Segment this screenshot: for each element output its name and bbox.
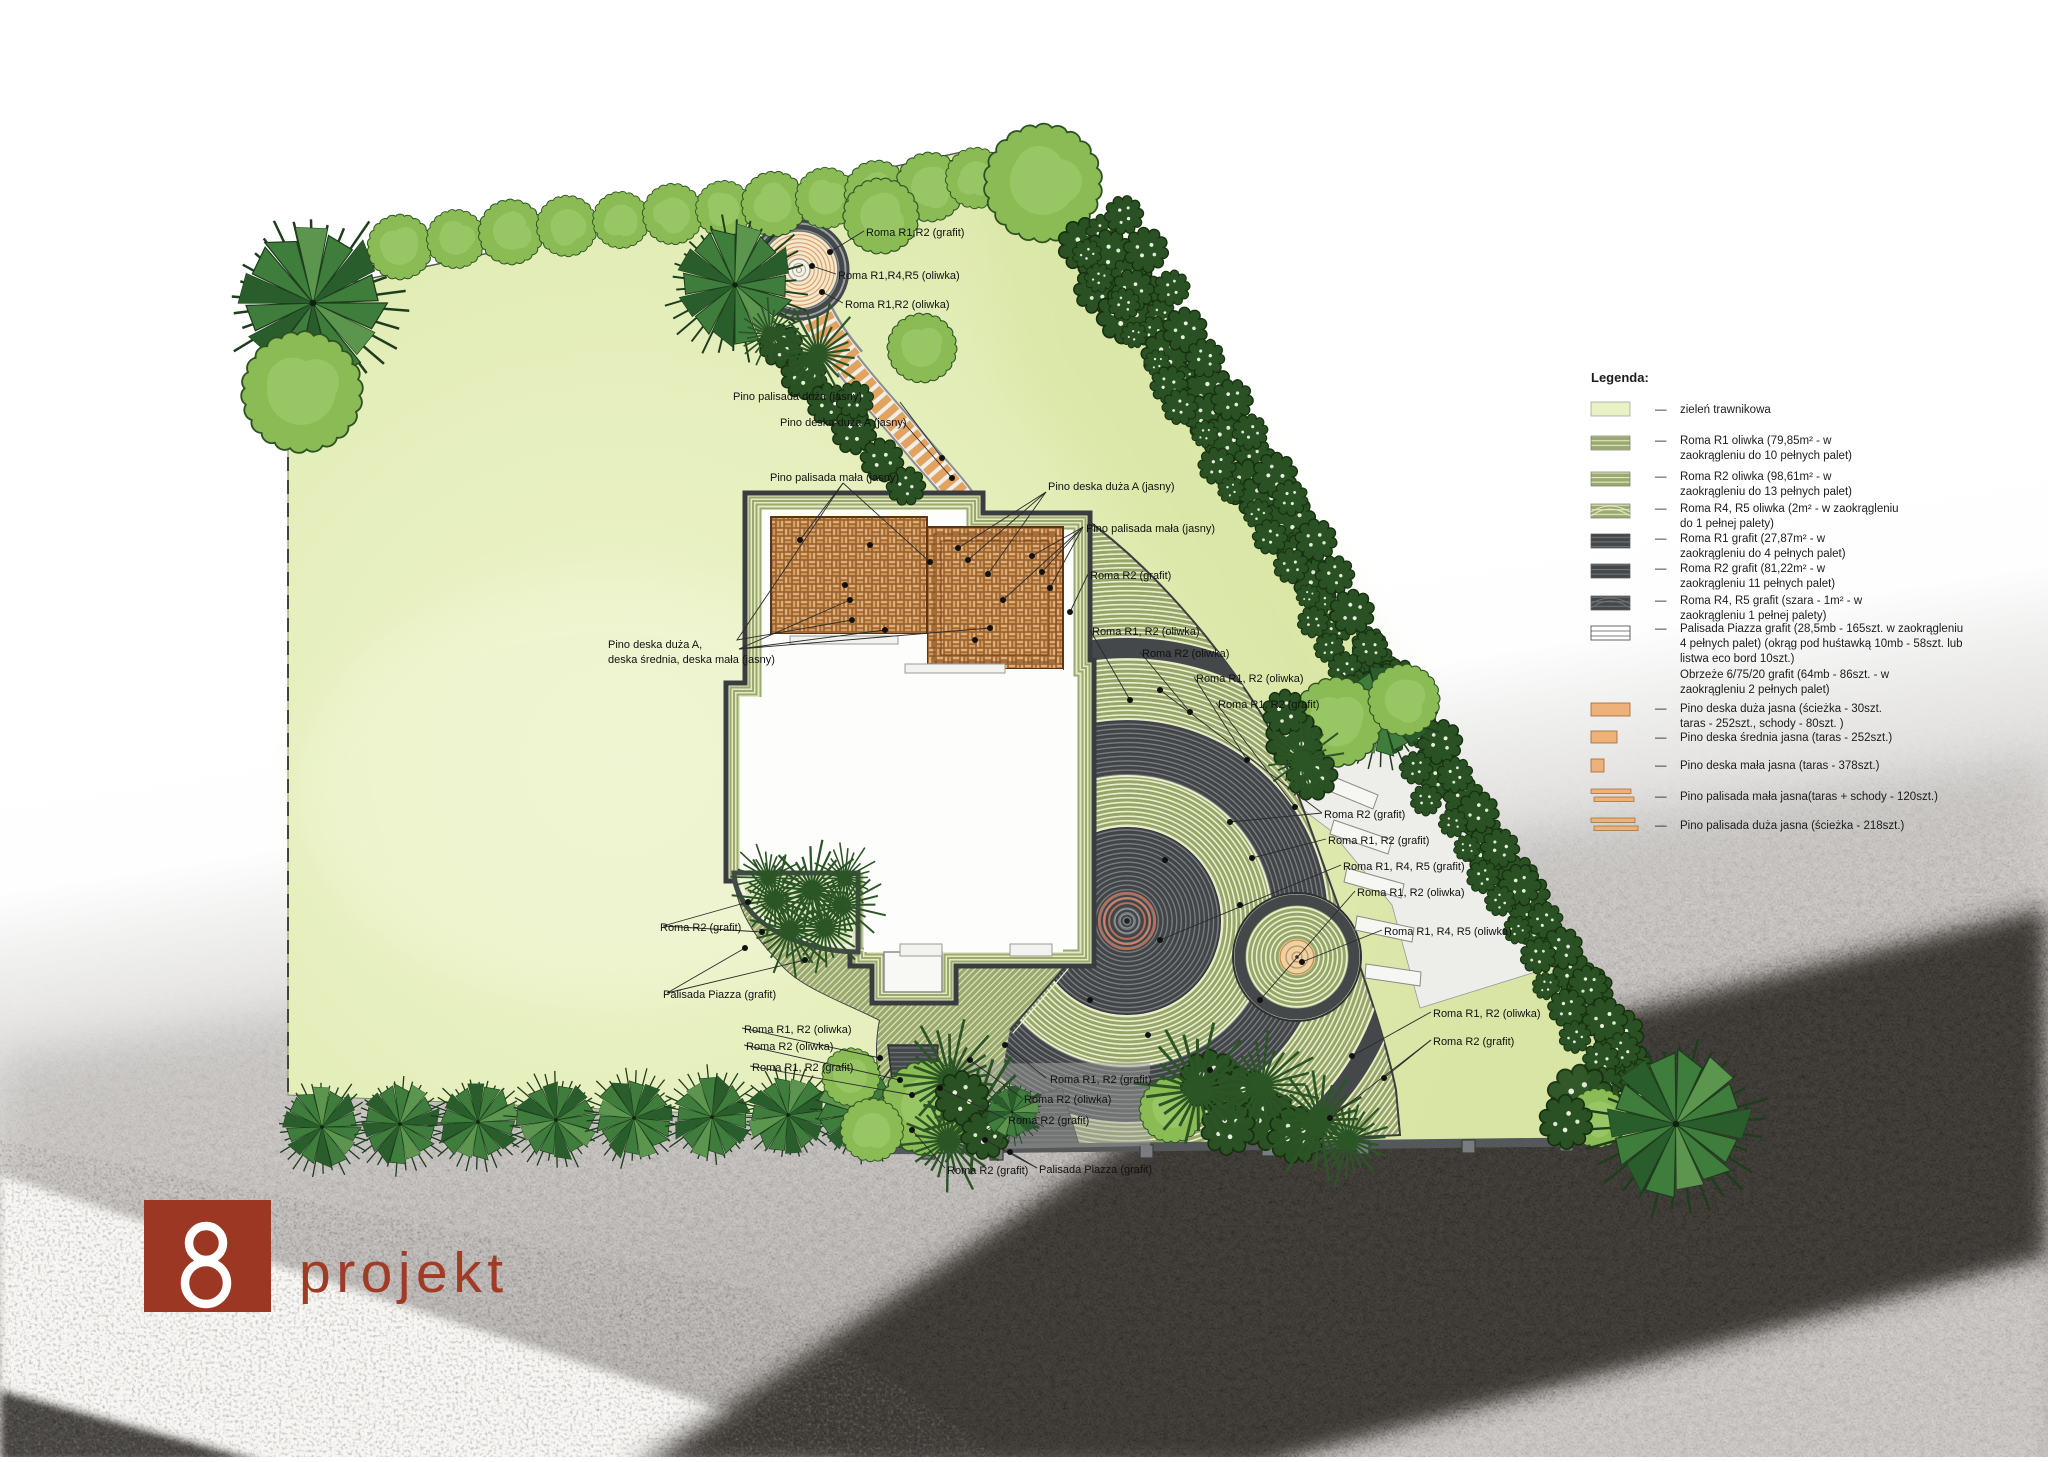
- svg-text:Pino palisada mała (jasny): Pino palisada mała (jasny): [1086, 523, 1215, 535]
- svg-text:Roma R1,R2 (grafit): Roma R1,R2 (grafit): [866, 227, 964, 239]
- svg-text:Palisada Piazza (grafit): Palisada Piazza (grafit): [663, 989, 776, 1001]
- svg-text:Roma R2 (grafit): Roma R2 (grafit): [947, 1165, 1028, 1177]
- svg-text:—: —: [1655, 791, 1667, 803]
- svg-text:Roma R1, R2 (oliwka): Roma R1, R2 (oliwka): [744, 1024, 852, 1036]
- svg-text:Pino palisada mała jasna(taras: Pino palisada mała jasna(taras + schody …: [1680, 791, 1938, 803]
- svg-text:Pino palisada duża (jasny): Pino palisada duża (jasny): [733, 391, 862, 403]
- svg-text:Roma R1 oliwka (79,85m² - w: Roma R1 oliwka (79,85m² - w: [1680, 435, 1832, 447]
- svg-text:—: —: [1655, 623, 1667, 635]
- svg-text:Roma R1 grafit (27,87m² - w: Roma R1 grafit (27,87m² - w: [1680, 533, 1826, 545]
- svg-text:Roma R2 (grafit): Roma R2 (grafit): [1008, 1115, 1089, 1127]
- svg-text:Legenda:: Legenda:: [1591, 370, 1649, 385]
- svg-text:Roma R1, R2 (oliwka): Roma R1, R2 (oliwka): [1433, 1008, 1541, 1020]
- svg-text:—: —: [1655, 820, 1667, 832]
- svg-text:listwa eco bord 10szt.): listwa eco bord 10szt.): [1680, 653, 1795, 665]
- svg-text:Roma R4, R5 grafit (szara - 1m: Roma R4, R5 grafit (szara - 1m² - w: [1680, 595, 1863, 607]
- svg-text:Roma R2 oliwka (98,61m² - w: Roma R2 oliwka (98,61m² - w: [1680, 471, 1832, 483]
- svg-text:Roma R1, R2 (oliwka): Roma R1, R2 (oliwka): [1092, 626, 1200, 638]
- svg-text:—: —: [1655, 595, 1667, 607]
- svg-text:—: —: [1655, 435, 1667, 447]
- svg-text:Obrzeże 6/75/20 grafit (64mb -: Obrzeże 6/75/20 grafit (64mb - 86szt. - …: [1680, 669, 1890, 681]
- svg-text:Pino deska duża A (jasny): Pino deska duża A (jasny): [780, 417, 907, 429]
- svg-text:Roma R1, R4, R5 (grafit): Roma R1, R4, R5 (grafit): [1343, 861, 1465, 873]
- svg-text:Roma R1, R2 (oliwka): Roma R1, R2 (oliwka): [1196, 673, 1304, 685]
- svg-text:Roma R2 (grafit): Roma R2 (grafit): [1324, 809, 1405, 821]
- svg-text:Pino deska duża A,: Pino deska duża A,: [608, 639, 702, 651]
- svg-text:Roma R1, R2 (grafit): Roma R1, R2 (grafit): [752, 1062, 853, 1074]
- svg-text:Palisada Piazza (grafit): Palisada Piazza (grafit): [1039, 1164, 1152, 1176]
- svg-text:Roma R1, R4, R5 (oliwka): Roma R1, R4, R5 (oliwka): [1384, 926, 1512, 938]
- svg-text:—: —: [1655, 760, 1667, 772]
- svg-text:Palisada Piazza grafit (28,5mb: Palisada Piazza grafit (28,5mb - 165szt.…: [1680, 623, 1963, 635]
- svg-text:Roma R2 (oliwka): Roma R2 (oliwka): [1024, 1094, 1111, 1106]
- svg-text:zieleń trawnikowa: zieleń trawnikowa: [1680, 404, 1771, 416]
- svg-text:zaokrągleniu do 10 pełnych pal: zaokrągleniu do 10 pełnych palet): [1680, 450, 1852, 462]
- svg-text:Roma R2 (grafit): Roma R2 (grafit): [1090, 570, 1171, 582]
- svg-text:—: —: [1655, 732, 1667, 744]
- svg-text:Roma R1, R2 (grafit): Roma R1, R2 (grafit): [1328, 835, 1429, 847]
- svg-text:zaokrągleniu 1 pełnej palety): zaokrągleniu 1 pełnej palety): [1680, 610, 1827, 622]
- svg-text:zaokrągleniu do 13 pełnych pal: zaokrągleniu do 13 pełnych palet): [1680, 486, 1852, 498]
- svg-text:Pino palisada duża jasna (ście: Pino palisada duża jasna (ścieżka - 218s…: [1680, 820, 1905, 832]
- svg-text:zaokrągleniu do 4 pełnych pale: zaokrągleniu do 4 pełnych palet): [1680, 548, 1846, 560]
- svg-text:—: —: [1655, 471, 1667, 483]
- svg-text:—: —: [1655, 563, 1667, 575]
- svg-text:Roma R1,R4,R5 (oliwka): Roma R1,R4,R5 (oliwka): [838, 270, 960, 282]
- svg-text:—: —: [1655, 703, 1667, 715]
- svg-text:deska średnia, deska mała (jas: deska średnia, deska mała (jasny): [608, 654, 775, 666]
- svg-text:Pino palisada mała (jasny): Pino palisada mała (jasny): [770, 472, 899, 484]
- svg-text:do 1 pełnej palety): do 1 pełnej palety): [1680, 518, 1774, 530]
- svg-text:Pino deska średnia jasna (tara: Pino deska średnia jasna (taras - 252szt…: [1680, 732, 1892, 744]
- svg-text:Roma R2 (oliwka): Roma R2 (oliwka): [1142, 648, 1229, 660]
- svg-text:Roma R2 (grafit): Roma R2 (grafit): [660, 922, 741, 934]
- svg-text:zaokrągleniu 11 pełnych palet): zaokrągleniu 11 pełnych palet): [1680, 578, 1835, 590]
- svg-text:Pino deska duża A (jasny): Pino deska duża A (jasny): [1048, 481, 1175, 493]
- svg-text:Roma R1, R2 (grafit): Roma R1, R2 (grafit): [1050, 1074, 1151, 1086]
- svg-text:Pino deska mała jasna (taras -: Pino deska mała jasna (taras - 378szt.): [1680, 760, 1880, 772]
- svg-text:projekt: projekt: [299, 1241, 509, 1305]
- svg-text:Roma R1, R2 (grafit): Roma R1, R2 (grafit): [1218, 699, 1319, 711]
- svg-text:Roma R1,R2 (oliwka): Roma R1,R2 (oliwka): [845, 299, 950, 311]
- svg-text:Pino deska duża jasna (ścieżka: Pino deska duża jasna (ścieżka - 30szt.: [1680, 703, 1882, 715]
- svg-text:Roma R2 (oliwka): Roma R2 (oliwka): [746, 1041, 833, 1053]
- svg-text:—: —: [1655, 503, 1667, 515]
- svg-text:taras - 252szt., schody - 80sz: taras - 252szt., schody - 80szt. ): [1680, 718, 1844, 730]
- svg-text:—: —: [1655, 533, 1667, 545]
- svg-text:—: —: [1655, 404, 1667, 416]
- svg-text:Roma R4, R5 oliwka (2m² - w za: Roma R4, R5 oliwka (2m² - w zaokrągleniu: [1680, 503, 1899, 515]
- svg-text:Roma R2 (grafit): Roma R2 (grafit): [1433, 1036, 1514, 1048]
- svg-text:zaokrągleniu 2 pełnych palet): zaokrągleniu 2 pełnych palet): [1680, 684, 1830, 696]
- svg-text:Roma R1, R2 (oliwka): Roma R1, R2 (oliwka): [1357, 887, 1465, 899]
- svg-text:Roma R2 grafit (81,22m² - w: Roma R2 grafit (81,22m² - w: [1680, 563, 1826, 575]
- svg-text:4 pełnych palet) (okrąg pod hu: 4 pełnych palet) (okrąg pod huśtawką 10m…: [1680, 638, 1963, 650]
